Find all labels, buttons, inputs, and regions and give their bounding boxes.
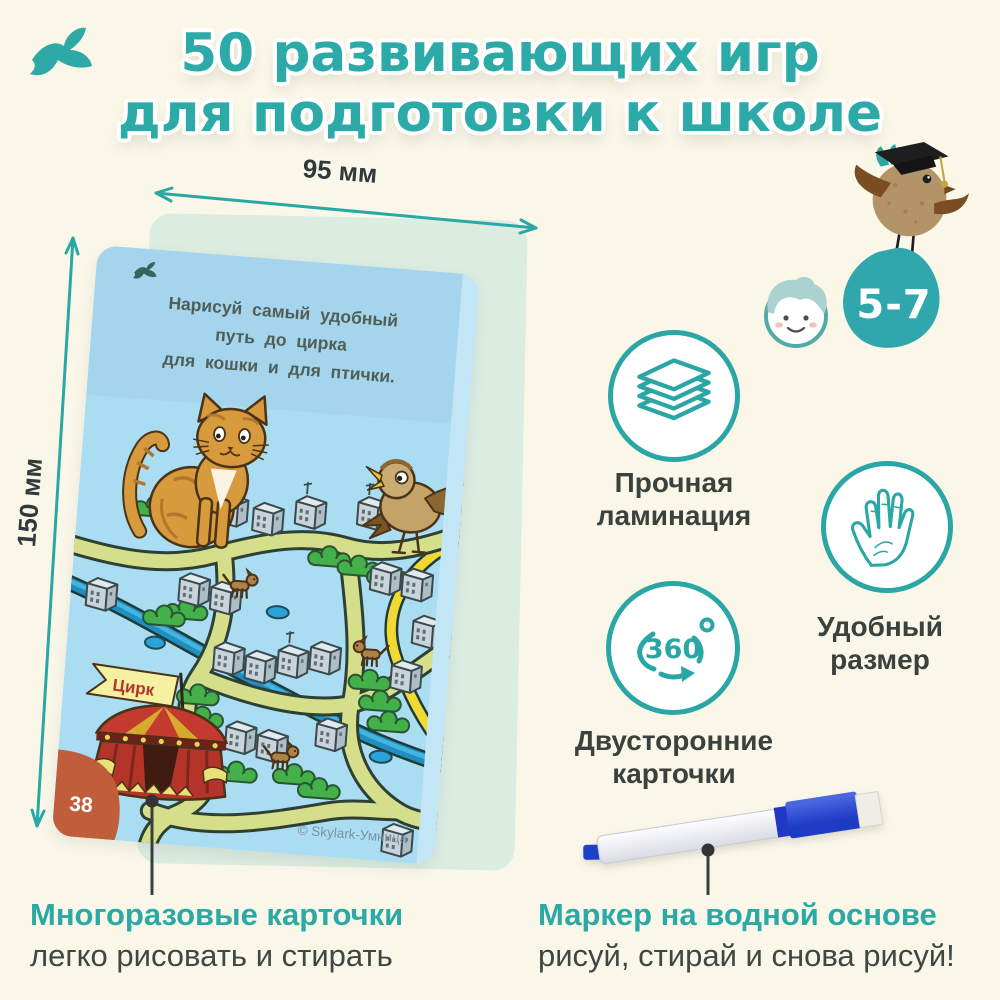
marker-callout: Маркер на водной основе рисуй, стирай и … bbox=[538, 897, 955, 974]
title-line-2: для подготовки к школе bbox=[50, 84, 950, 144]
feature-lamination-label: Прочная ламинация bbox=[524, 466, 824, 532]
page-title: 50 развивающих игр для подготовки к школ… bbox=[50, 24, 950, 144]
width-dimension-label: 95 мм bbox=[249, 149, 431, 194]
feature-lamination-line2: ламинация bbox=[524, 499, 824, 532]
card-number: 38 bbox=[68, 793, 93, 818]
feature-size-line2: размер bbox=[730, 643, 1000, 676]
product-poster: 50 развивающих игр для подготовки к школ… bbox=[0, 0, 1000, 1000]
cards-callout-title: Многоразовые карточки bbox=[30, 897, 403, 933]
marker-eraser-tip bbox=[855, 791, 884, 828]
age-badge-label: 5-7 bbox=[856, 282, 931, 328]
card-map-illustration: Нарисуй самый удобный путь до цирка для … bbox=[52, 245, 480, 865]
cards-callout: Многоразовые карточки легко рисовать и с… bbox=[30, 897, 403, 974]
marker-callout-title: Маркер на водной основе bbox=[538, 897, 955, 933]
title-line-1: 50 развивающих игр bbox=[50, 24, 950, 84]
height-dimension-label: 150 мм bbox=[9, 427, 52, 579]
marker-callout-subtitle: рисуй, стирай и снова рисуй! bbox=[538, 938, 955, 974]
feature-double-sided-label: Двусторонние карточки bbox=[504, 724, 844, 790]
lamination-layers-icon bbox=[626, 348, 722, 444]
double-sided-360-icon: 360 bbox=[623, 598, 723, 698]
feature-size-line1: Удобный bbox=[730, 610, 1000, 643]
hand-size-icon bbox=[839, 479, 935, 575]
feature-double-sided-line2: карточки bbox=[504, 757, 844, 790]
marker-cap bbox=[785, 791, 862, 838]
child-face-icon bbox=[750, 270, 842, 354]
feature-lamination-line1: Прочная bbox=[524, 466, 824, 499]
feature-lamination bbox=[608, 330, 740, 462]
feature-size bbox=[821, 461, 953, 593]
game-card: Нарисуй самый удобный путь до цирка для … bbox=[52, 245, 480, 865]
marker-body bbox=[596, 809, 780, 865]
age-badge: 5-7 bbox=[836, 246, 956, 354]
feature-double-sided: 360 bbox=[606, 581, 740, 715]
feature-double-sided-line1: Двусторонние bbox=[504, 724, 844, 757]
cards-callout-subtitle: легко рисовать и стирать bbox=[30, 938, 403, 974]
marker-pen bbox=[595, 790, 879, 868]
feature-size-label: Удобный размер bbox=[730, 610, 1000, 676]
